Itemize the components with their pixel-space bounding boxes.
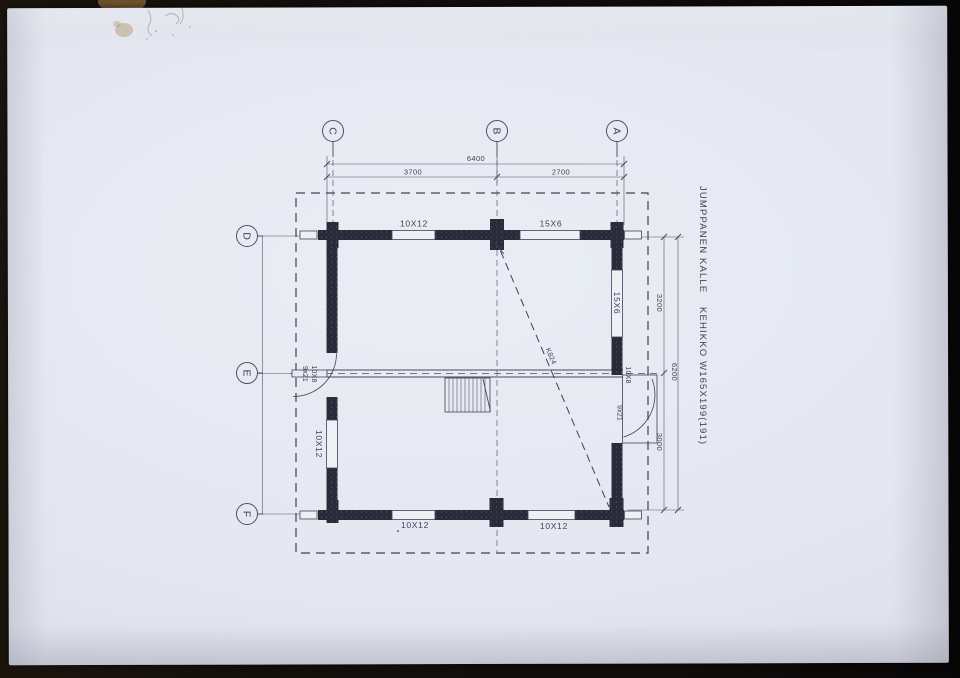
grid-letter-e: E — [241, 369, 253, 376]
opening-labels: 10X12 15X6 10X12 15X6 10X12 10X12 9x21 1… — [301, 219, 631, 532]
label-left-door-size: 9x21 — [301, 366, 308, 382]
window-openings — [300, 231, 642, 520]
floor-plan-drawing: C B A D E F 6400 3700 2700 3200 3000 620… — [0, 0, 960, 678]
diagonal-brace-line — [494, 242, 609, 507]
label-right-window: 15X6 — [612, 292, 622, 315]
title-owner: JUMPPANEN KALLE — [697, 186, 708, 293]
log-walls — [318, 230, 624, 520]
top-dimension-extensions — [327, 156, 624, 225]
grid-bubbles: C B A D E F — [237, 121, 628, 525]
label-right-door-frame: 10X8 — [624, 366, 631, 383]
grid-letter-f: F — [241, 511, 253, 517]
title-frame-spec: KEHIKKO W165X199(191) — [697, 307, 708, 445]
grid-lines — [258, 142, 618, 553]
label-left-door-frame: 10X8 — [310, 365, 317, 382]
dim-right-total: 6200 — [670, 363, 679, 381]
top-dimension-lines — [324, 161, 627, 180]
label-bottom-window-2: 10X12 — [540, 521, 568, 531]
label-left-window: 10X12 — [314, 430, 324, 458]
dim-right-seg1: 3200 — [655, 294, 664, 312]
dashed-outline-box — [296, 193, 648, 553]
photo-background: C B A D E F 6400 3700 2700 3200 3000 620… — [0, 0, 960, 678]
pencil-scribbles — [113, 8, 399, 532]
grid-letter-c: C — [327, 127, 339, 135]
dim-top-seg2: 2700 — [552, 168, 570, 177]
dim-top-total: 6400 — [467, 154, 485, 163]
grid-letter-a: A — [611, 127, 623, 134]
dim-top-seg1: 3700 — [404, 168, 422, 177]
grid-letter-b: B — [491, 127, 503, 134]
corner-posts — [327, 219, 624, 527]
stairs — [445, 378, 491, 412]
ink-speck — [397, 530, 399, 532]
label-right-door-size: 9x21 — [616, 405, 623, 421]
label-bottom-window-1: 10X12 — [401, 520, 429, 530]
dim-right-seg2: 3000 — [655, 433, 664, 451]
label-diagonal: K824 — [544, 347, 557, 366]
title-block: JUMPPANEN KALLE KEHIKKO W165X199(191) — [697, 186, 708, 445]
label-top-window-2: 15X6 — [540, 219, 563, 229]
label-top-window-1: 10X12 — [400, 219, 428, 229]
right-door — [623, 375, 658, 443]
centre-beam — [290, 370, 662, 377]
grid-letter-d: D — [241, 232, 253, 240]
